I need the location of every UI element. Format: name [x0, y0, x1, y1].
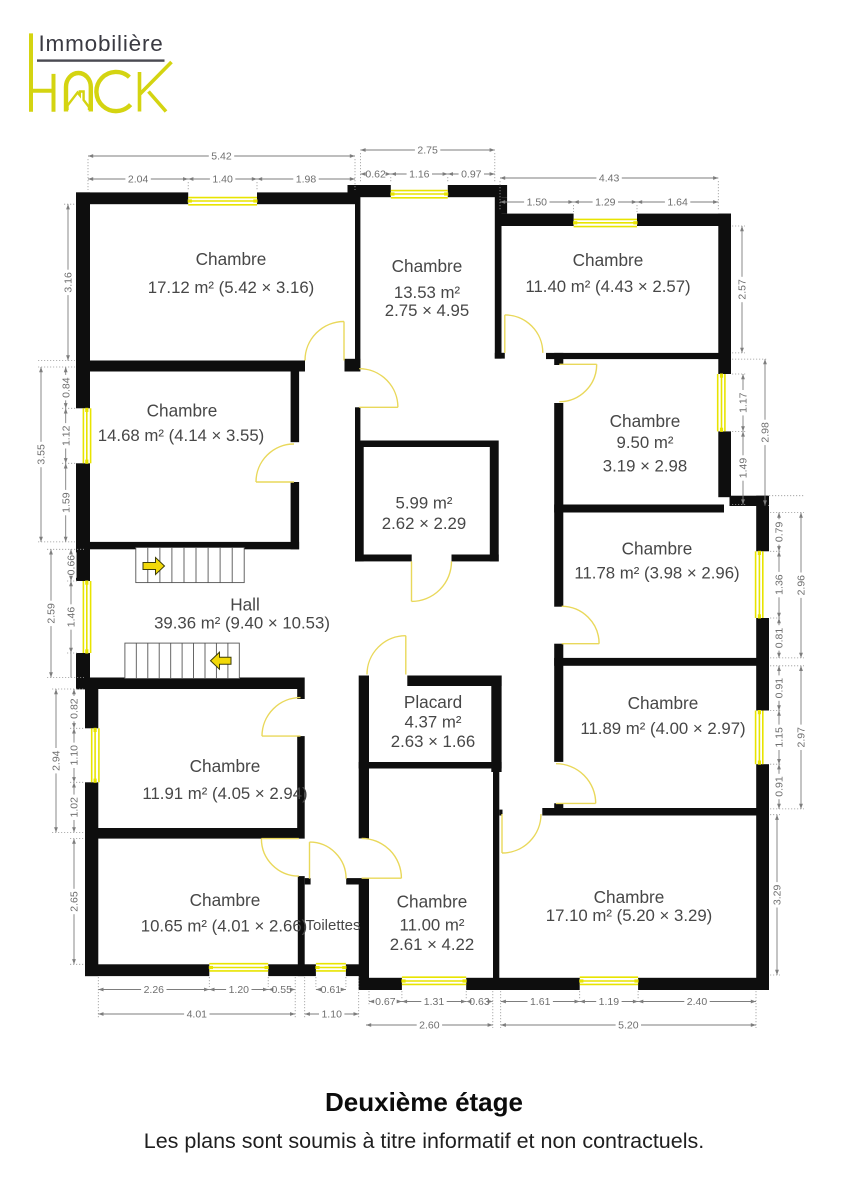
svg-text:17.12 m² (5.42 × 3.16): 17.12 m² (5.42 × 3.16) — [148, 278, 315, 297]
svg-text:3.16: 3.16 — [63, 272, 75, 293]
svg-text:1.20: 1.20 — [229, 984, 250, 996]
svg-text:0.91: 0.91 — [774, 776, 786, 797]
svg-text:2.04: 2.04 — [128, 174, 149, 186]
svg-text:2.98: 2.98 — [760, 422, 772, 443]
svg-text:2.61 × 4.22: 2.61 × 4.22 — [390, 935, 474, 954]
svg-text:Chambre: Chambre — [622, 539, 693, 559]
svg-text:Chambre: Chambre — [196, 249, 267, 269]
svg-text:1.36: 1.36 — [774, 574, 786, 595]
svg-text:13.53 m²: 13.53 m² — [394, 283, 461, 302]
svg-text:Chambre: Chambre — [190, 756, 261, 776]
svg-text:2.26: 2.26 — [144, 984, 165, 996]
svg-text:0.63: 0.63 — [469, 996, 490, 1008]
svg-text:1.19: 1.19 — [599, 996, 620, 1008]
svg-text:2.62 × 2.29: 2.62 × 2.29 — [382, 514, 466, 533]
svg-text:17.10 m² (5.20 × 3.29): 17.10 m² (5.20 × 3.29) — [546, 906, 713, 925]
svg-text:0.84: 0.84 — [60, 377, 72, 398]
svg-text:11.91 m² (4.05 × 2.94): 11.91 m² (4.05 × 2.94) — [142, 784, 307, 803]
svg-text:5.42: 5.42 — [211, 151, 232, 163]
svg-text:2.75: 2.75 — [417, 145, 438, 157]
svg-text:0.62: 0.62 — [365, 169, 386, 181]
svg-text:Immobilière: Immobilière — [39, 31, 164, 56]
svg-text:1.17: 1.17 — [738, 392, 750, 413]
svg-text:3.19 × 2.98: 3.19 × 2.98 — [603, 457, 687, 476]
svg-text:2.97: 2.97 — [796, 727, 808, 748]
svg-text:0.79: 0.79 — [774, 522, 786, 543]
svg-text:2.96: 2.96 — [796, 575, 808, 596]
svg-text:1.10: 1.10 — [321, 1009, 342, 1021]
svg-text:2.57: 2.57 — [737, 279, 749, 300]
svg-text:5.20: 5.20 — [618, 1020, 639, 1032]
svg-text:0.82: 0.82 — [69, 698, 81, 719]
svg-text:1.15: 1.15 — [774, 727, 786, 748]
svg-text:1.50: 1.50 — [527, 197, 548, 209]
svg-text:Les plans sont soumis à titre: Les plans sont soumis à titre informatif… — [144, 1129, 704, 1153]
svg-text:0.97: 0.97 — [461, 169, 482, 181]
svg-text:11.00 m²: 11.00 m² — [400, 916, 465, 935]
svg-text:11.78 m² (3.98 × 2.96): 11.78 m² (3.98 × 2.96) — [574, 564, 739, 583]
svg-text:4.43: 4.43 — [599, 173, 620, 185]
svg-text:10.65 m² (4.01 × 2.66): 10.65 m² (4.01 × 2.66) — [141, 917, 308, 936]
svg-text:0.91: 0.91 — [774, 678, 786, 699]
svg-text:1.64: 1.64 — [667, 197, 688, 209]
svg-text:Chambre: Chambre — [190, 890, 261, 910]
svg-text:Deuxième étage: Deuxième étage — [325, 1087, 523, 1117]
svg-text:1.49: 1.49 — [738, 458, 750, 479]
svg-text:0.67: 0.67 — [375, 996, 396, 1008]
svg-text:Chambre: Chambre — [594, 887, 665, 907]
svg-text:1.02: 1.02 — [69, 797, 81, 818]
svg-text:2.94: 2.94 — [51, 750, 63, 771]
svg-text:Chambre: Chambre — [397, 892, 468, 912]
svg-text:2.59: 2.59 — [46, 603, 58, 624]
svg-text:0.66: 0.66 — [66, 555, 78, 576]
svg-text:2.60: 2.60 — [419, 1020, 440, 1032]
svg-text:0.55: 0.55 — [271, 984, 292, 996]
svg-text:4.01: 4.01 — [187, 1009, 208, 1021]
svg-text:1.98: 1.98 — [296, 174, 317, 186]
svg-text:Chambre: Chambre — [147, 401, 218, 421]
svg-text:4.37 m²: 4.37 m² — [405, 713, 462, 732]
svg-text:2.75 × 4.95: 2.75 × 4.95 — [385, 301, 469, 320]
svg-text:1.59: 1.59 — [60, 492, 72, 513]
svg-text:1.29: 1.29 — [595, 197, 616, 209]
svg-text:0.81: 0.81 — [774, 628, 786, 649]
svg-text:1.31: 1.31 — [424, 996, 445, 1008]
svg-text:3.29: 3.29 — [772, 885, 784, 906]
svg-text:Placard: Placard — [404, 692, 462, 712]
svg-text:Toilettes: Toilettes — [305, 917, 360, 934]
svg-text:Chambre: Chambre — [628, 693, 699, 713]
svg-text:2.40: 2.40 — [687, 996, 708, 1008]
svg-text:Hall: Hall — [230, 595, 260, 615]
svg-text:14.68 m² (4.14 × 3.55): 14.68 m² (4.14 × 3.55) — [98, 426, 265, 445]
svg-text:1.10: 1.10 — [69, 745, 81, 766]
svg-text:11.89 m² (4.00 × 2.97): 11.89 m² (4.00 × 2.97) — [580, 719, 745, 738]
svg-text:3.55: 3.55 — [36, 444, 48, 465]
svg-text:2.63 × 1.66: 2.63 × 1.66 — [391, 732, 475, 751]
svg-text:5.99 m²: 5.99 m² — [396, 494, 453, 513]
svg-text:9.50 m²: 9.50 m² — [617, 433, 674, 452]
svg-text:2.65: 2.65 — [69, 891, 81, 912]
svg-text:1.16: 1.16 — [409, 169, 430, 181]
svg-text:11.40 m² (4.43 × 2.57): 11.40 m² (4.43 × 2.57) — [525, 277, 690, 296]
svg-text:1.61: 1.61 — [530, 996, 551, 1008]
svg-text:39.36 m² (9.40 × 10.53): 39.36 m² (9.40 × 10.53) — [154, 614, 330, 633]
svg-text:1.46: 1.46 — [66, 607, 78, 628]
svg-text:Chambre: Chambre — [573, 250, 644, 270]
svg-text:1.12: 1.12 — [60, 425, 72, 446]
svg-text:Chambre: Chambre — [392, 256, 463, 276]
svg-text:0.61: 0.61 — [321, 984, 342, 996]
svg-text:Chambre: Chambre — [610, 411, 681, 431]
svg-text:1.40: 1.40 — [212, 174, 233, 186]
